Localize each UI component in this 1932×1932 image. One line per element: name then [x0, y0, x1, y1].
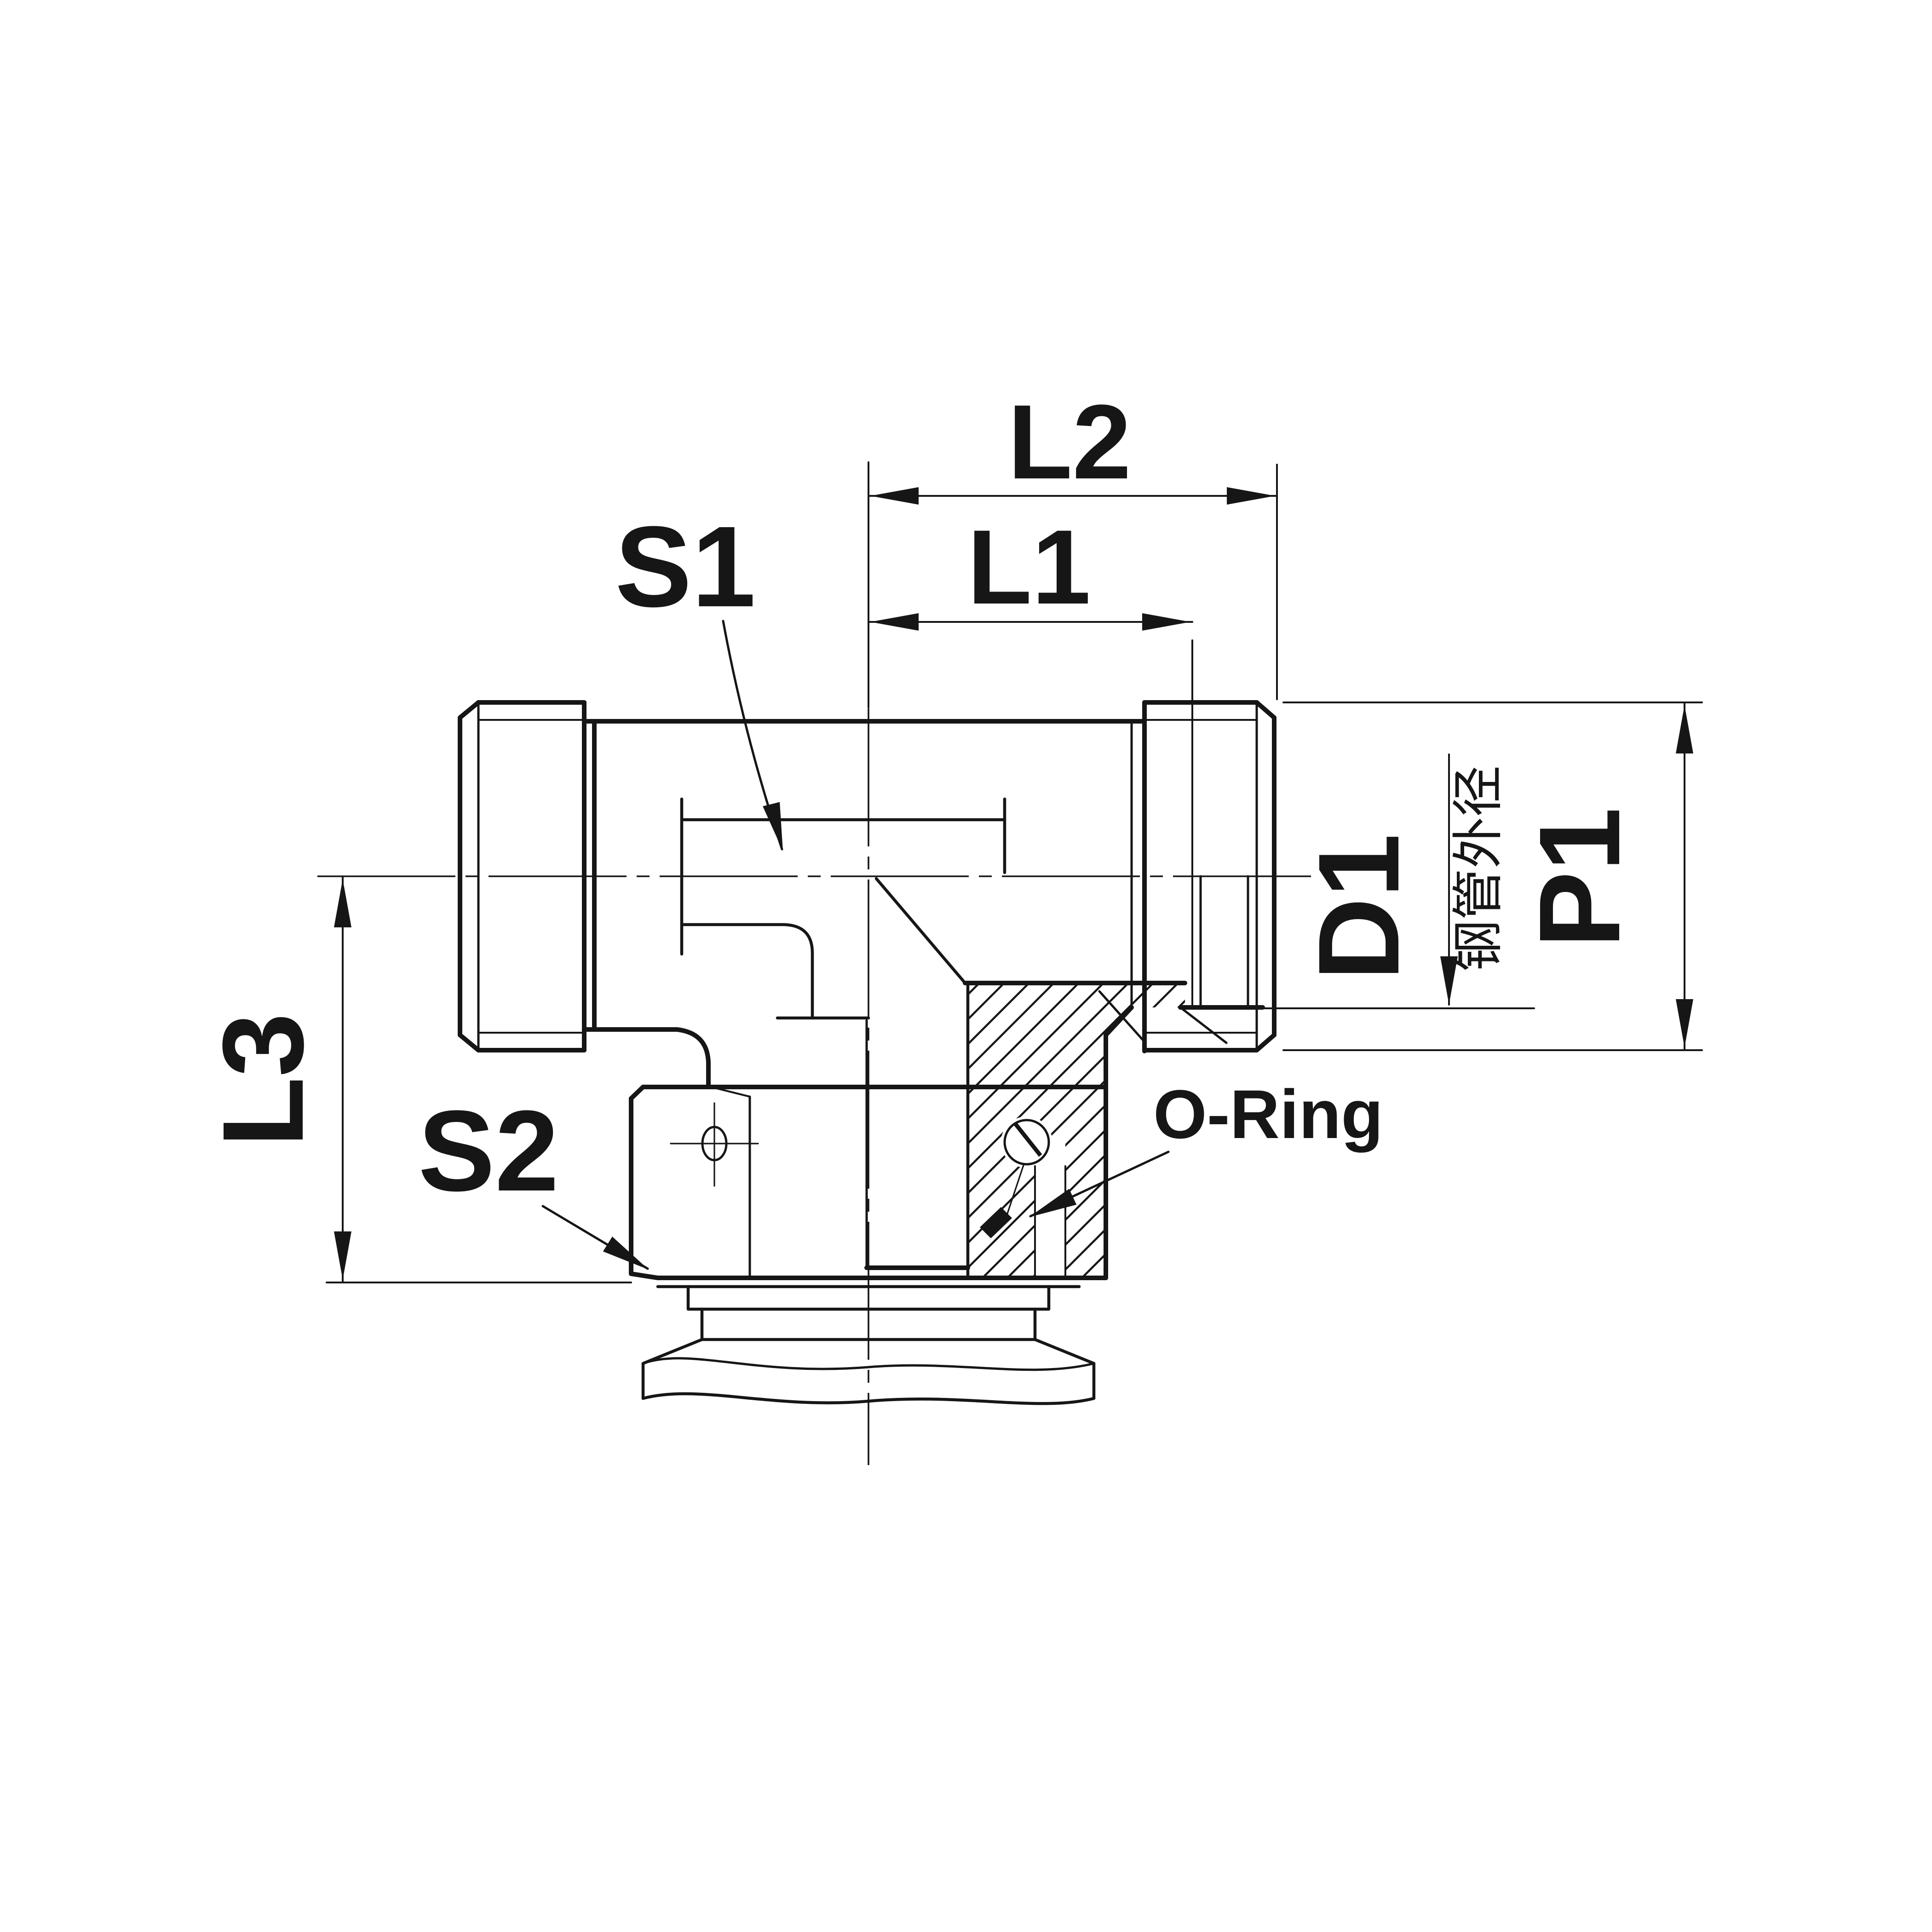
label-s2: S2: [418, 1087, 653, 1277]
hatch-area: [968, 984, 1185, 1278]
l2-label: L2: [1008, 383, 1131, 501]
dim-l1: L1: [868, 508, 1192, 631]
s2-label: S2: [418, 1087, 559, 1215]
o-ring-label: O-Ring: [1153, 1075, 1383, 1153]
label-s1: S1: [615, 502, 791, 853]
d1-label: D1: [1294, 834, 1423, 981]
p1-label: P1: [1515, 807, 1644, 948]
page: { "drawing": { "labels": { "s1": "S1", "…: [0, 0, 1932, 1932]
break-line-top: [643, 1358, 1094, 1370]
hole-crosshair: [671, 1103, 758, 1186]
internal-hex-socket: [682, 799, 1005, 1018]
dim-d1: D1 钢管外径: [1263, 754, 1534, 1008]
dim-l3: L3: [199, 876, 631, 1282]
d1-chinese-note: 钢管外径: [1449, 765, 1507, 972]
l1-label: L1: [967, 508, 1091, 626]
tee-fitting-section-drawing: L2 L1 L3 D1 钢管外径 P1 S1 S2: [0, 0, 1932, 1932]
l3-label: L3: [199, 1013, 327, 1147]
section-hatch: [867, 983, 1185, 1278]
drawing-canvas: L2 L1 L3 D1 钢管外径 P1 S1 S2: [0, 0, 1932, 1932]
s1-label: S1: [615, 502, 756, 631]
